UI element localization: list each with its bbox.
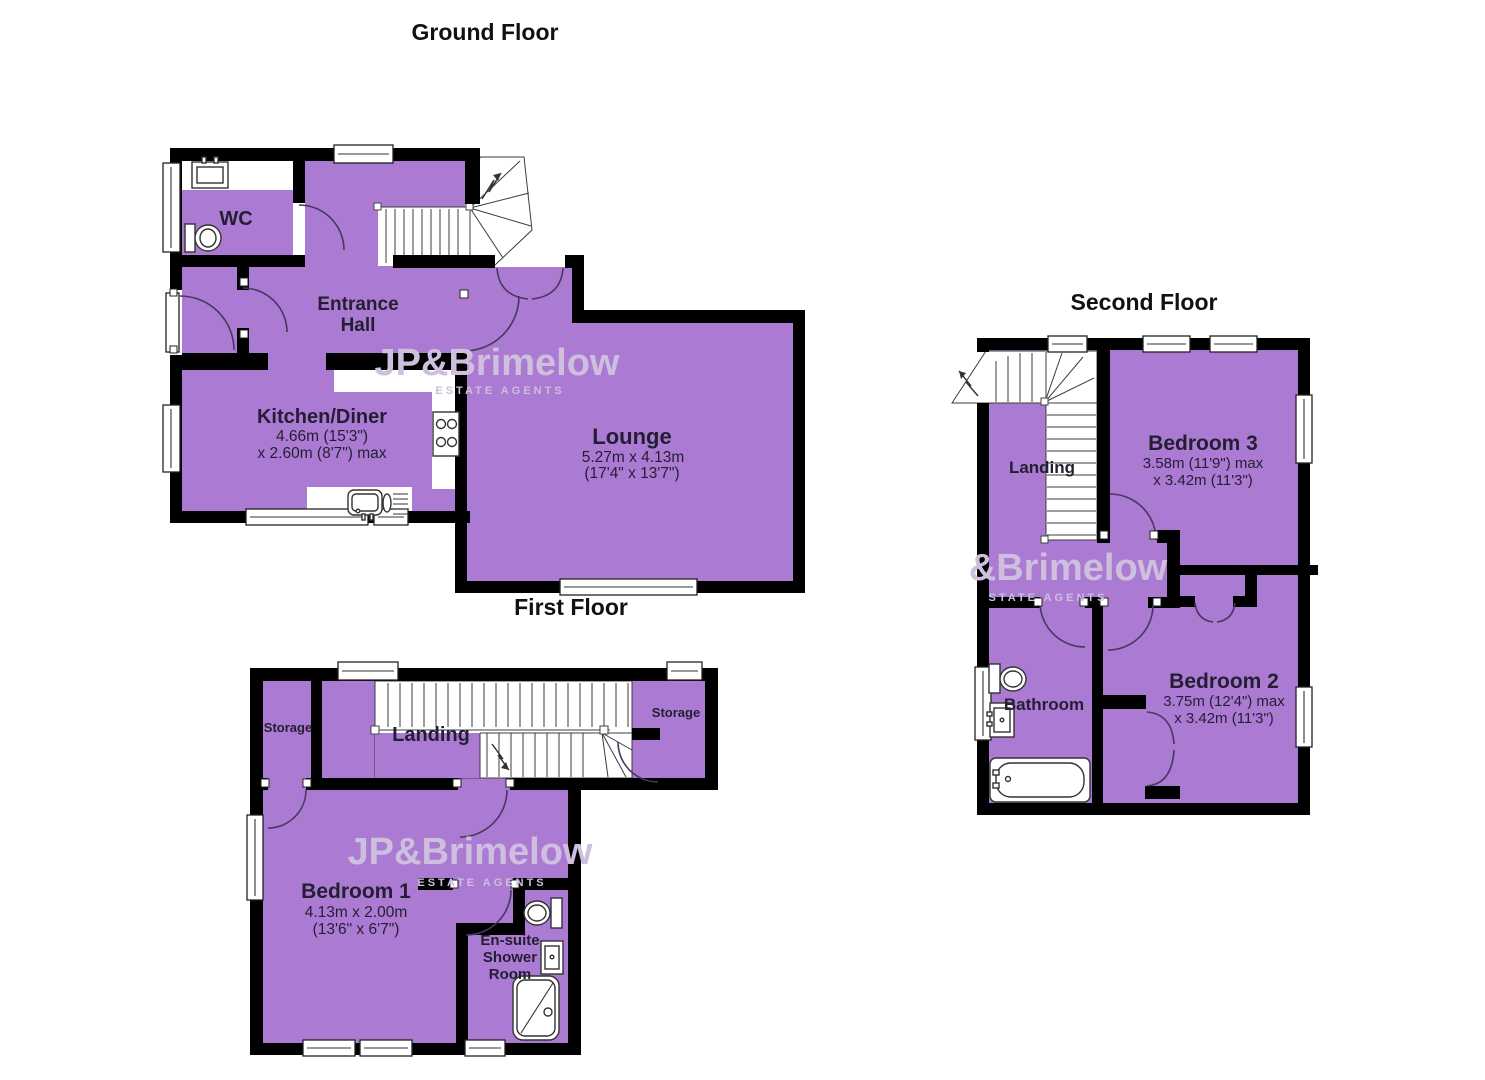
floorplan-canvas: Ground Floor [0,0,1485,1080]
label-bedroom3: Bedroom 3 [1148,432,1258,455]
label-ensuite-2: Shower [483,949,537,966]
label-wc: WC [219,208,252,230]
label-bedroom1: Bedroom 1 [301,880,411,903]
window [1296,687,1312,747]
dim-bedroom1-2: (13'6" x 6'7") [313,921,400,938]
first-floor-plan: First Floor [247,594,718,1056]
hob-icon [433,412,459,456]
ground-floor-title: Ground Floor [412,19,559,45]
label-ensuite-1: En-suite [480,932,539,949]
watermark-brand: JP&Brimelow [348,831,593,873]
window [465,1040,505,1056]
window [163,405,180,472]
label-landing: Landing [1009,458,1075,477]
first-floor-title: First Floor [514,594,628,620]
window [1143,336,1190,352]
dim-bedroom2-1: 3.75m (12'4") max [1163,693,1285,710]
window [303,1040,355,1056]
window [1048,336,1087,352]
window [360,1040,412,1056]
label-hall-2: Hall [341,315,376,336]
window [1210,336,1257,352]
dim-kitchen-1: 4.66m (15'3") [276,428,368,445]
label-storage-right: Storage [652,705,700,720]
sink-icon [192,157,228,188]
watermark-tagline: ESTATE AGENTS [435,385,564,397]
bath-icon [990,758,1090,802]
dim-kitchen-2: x 2.60m (8'7") max [257,445,386,462]
watermark-tagline: ESTATE AGENTS [417,877,546,889]
ground-floor-plan: Ground Floor [163,19,805,595]
label-bedroom2: Bedroom 2 [1169,670,1279,693]
label-ensuite-3: Room [489,966,532,983]
window [667,662,702,680]
label-landing: Landing [392,724,470,746]
dim-bedroom2-2: x 3.42m (11'3") [1174,710,1274,727]
dim-lounge-2: (17'4" x 13'7") [584,465,679,482]
dim-lounge-1: 5.27m x 4.13m [582,449,685,466]
label-bathroom: Bathroom [1004,695,1084,714]
toilet-icon [185,224,221,252]
second-floor-plan: Second Floor [952,289,1318,815]
second-floor-title: Second Floor [1071,289,1218,315]
window [338,662,398,680]
label-hall-1: Entrance [317,294,398,315]
window [560,579,697,595]
sink-icon [541,941,563,974]
dim-bedroom3-1: 3.58m (11'9") max [1143,455,1264,472]
toilet-icon [524,898,562,928]
dim-bedroom1-1: 4.13m x 2.00m [305,904,408,921]
window [334,145,393,163]
window [247,815,263,900]
shower-icon [513,976,559,1040]
watermark-tagline: STATE AGENTS [989,592,1108,604]
window [163,163,180,252]
window [1296,395,1312,463]
watermark-brand: JP&Brimelow [375,342,620,384]
dim-bedroom3-2: x 3.42m (11'3") [1153,472,1253,489]
label-storage-left: Storage [264,720,312,735]
label-lounge: Lounge [592,424,671,449]
label-kitchen: Kitchen/Diner [257,406,387,428]
watermark-brand: &Brimelow [969,547,1168,589]
toilet-icon [989,664,1026,693]
